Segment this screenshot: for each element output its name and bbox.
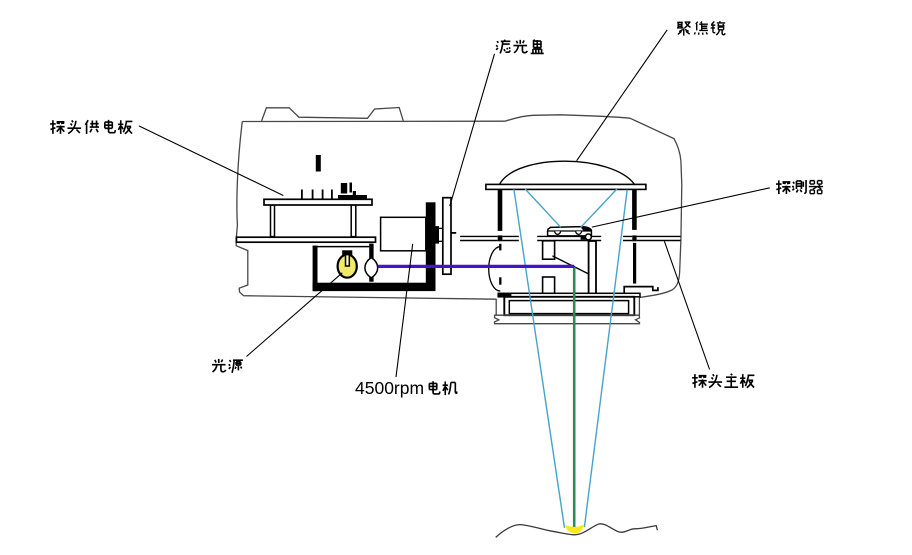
svg-text:4500rpm: 4500rpm [355, 378, 424, 398]
